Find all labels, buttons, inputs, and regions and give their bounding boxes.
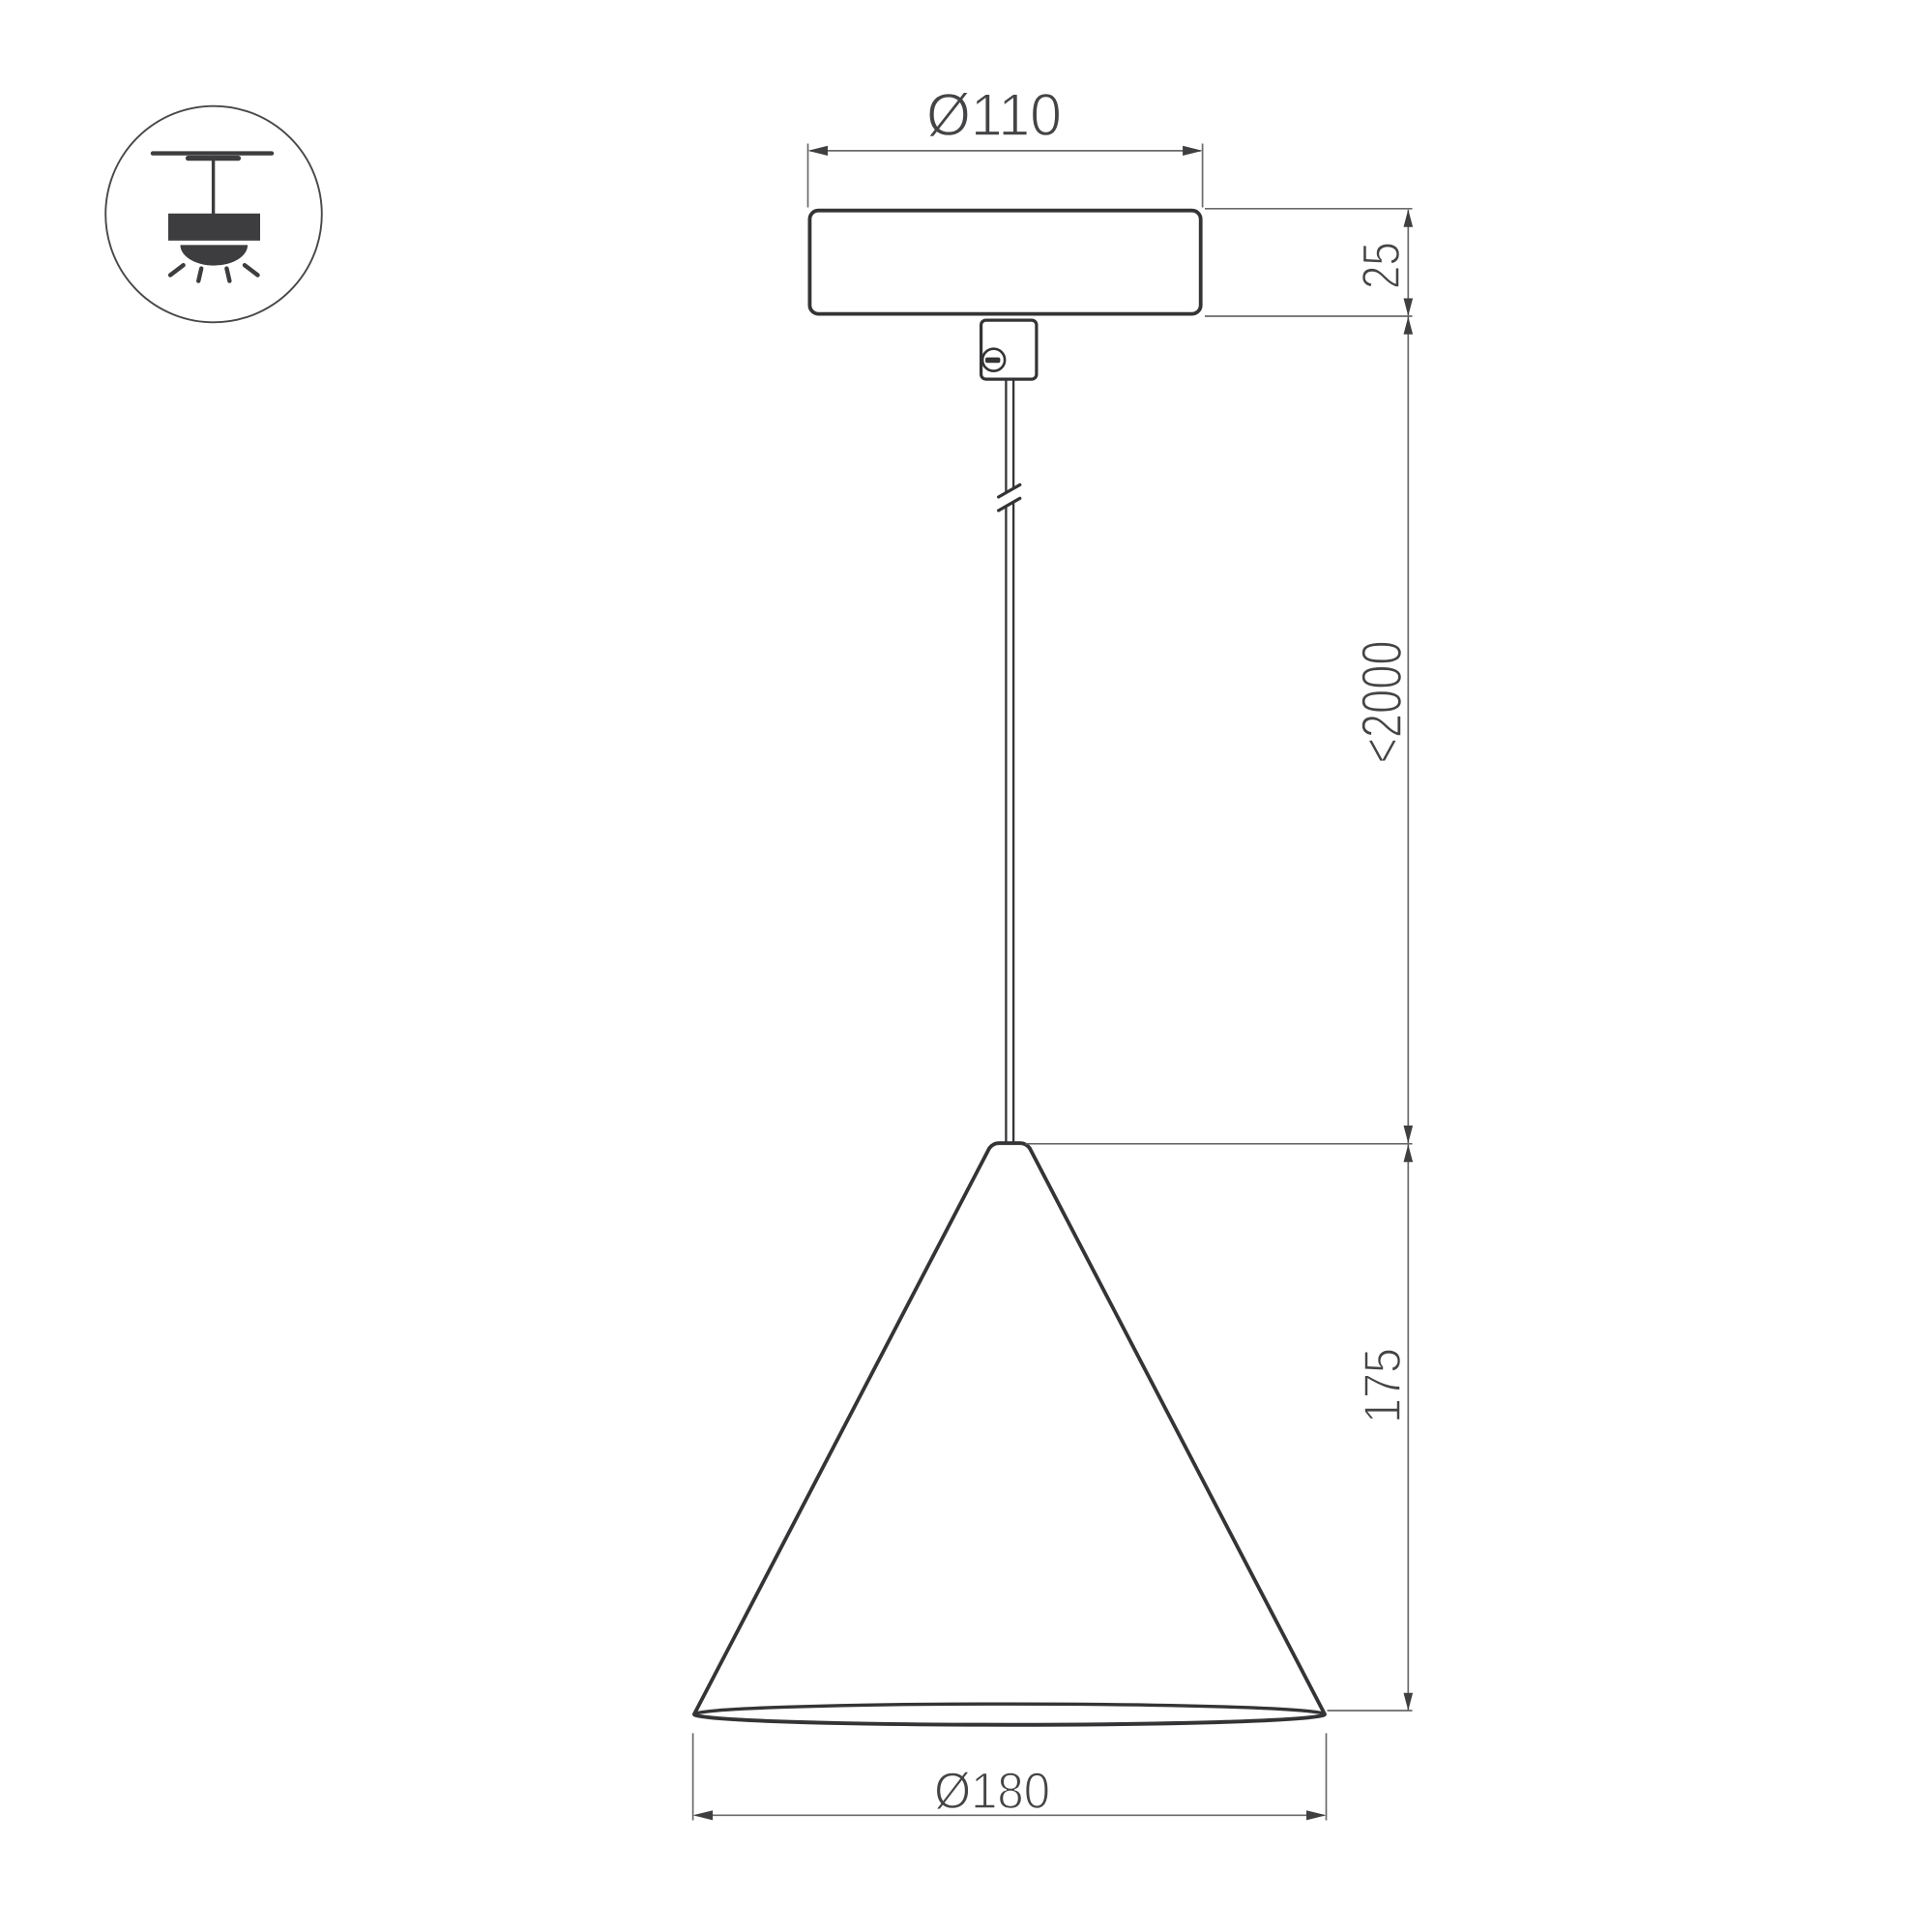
svg-text:<2000: <2000 <box>1351 641 1414 764</box>
svg-text:Ø110: Ø110 <box>926 82 1062 149</box>
svg-text:25: 25 <box>1351 242 1411 289</box>
svg-text:Ø180: Ø180 <box>934 1763 1050 1820</box>
svg-text:175: 175 <box>1354 1348 1412 1423</box>
